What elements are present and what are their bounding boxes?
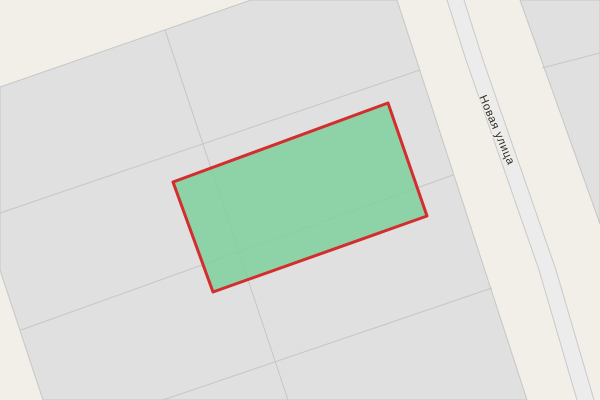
map-canvas[interactable]: Новая улица xyxy=(0,0,600,400)
map-svg[interactable]: Новая улица xyxy=(0,0,600,400)
